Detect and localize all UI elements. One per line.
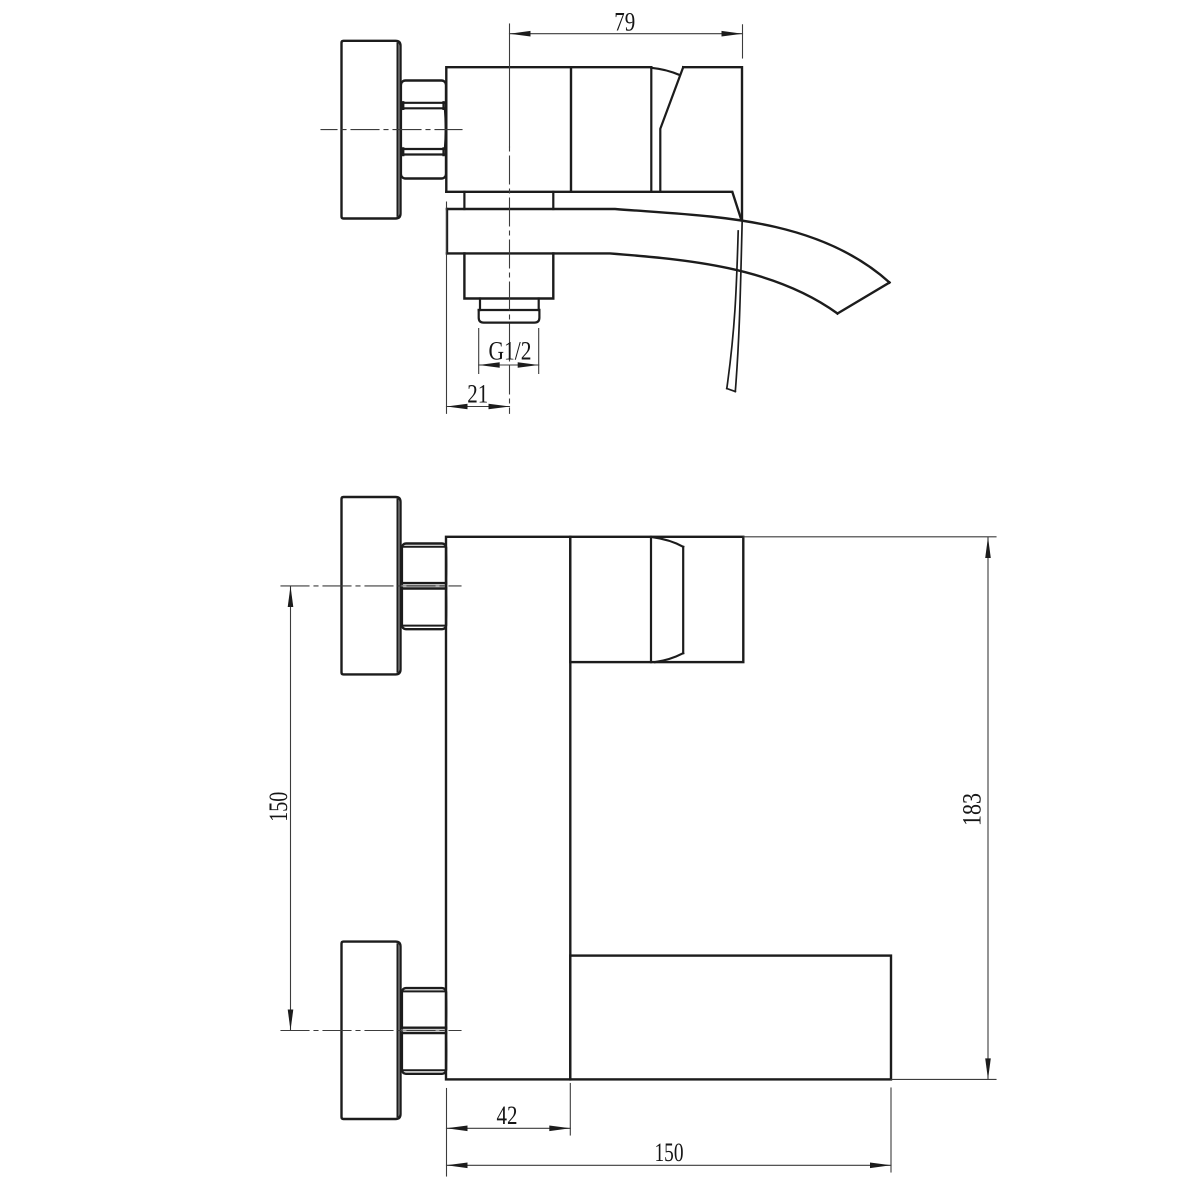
svg-text:42: 42	[497, 1101, 518, 1130]
svg-text:150: 150	[655, 1138, 684, 1167]
svg-text:21: 21	[467, 379, 488, 408]
svg-text:150: 150	[264, 792, 293, 822]
svg-text:183: 183	[957, 793, 986, 826]
svg-text:G1/2: G1/2	[489, 336, 532, 365]
svg-text:79: 79	[614, 8, 635, 37]
